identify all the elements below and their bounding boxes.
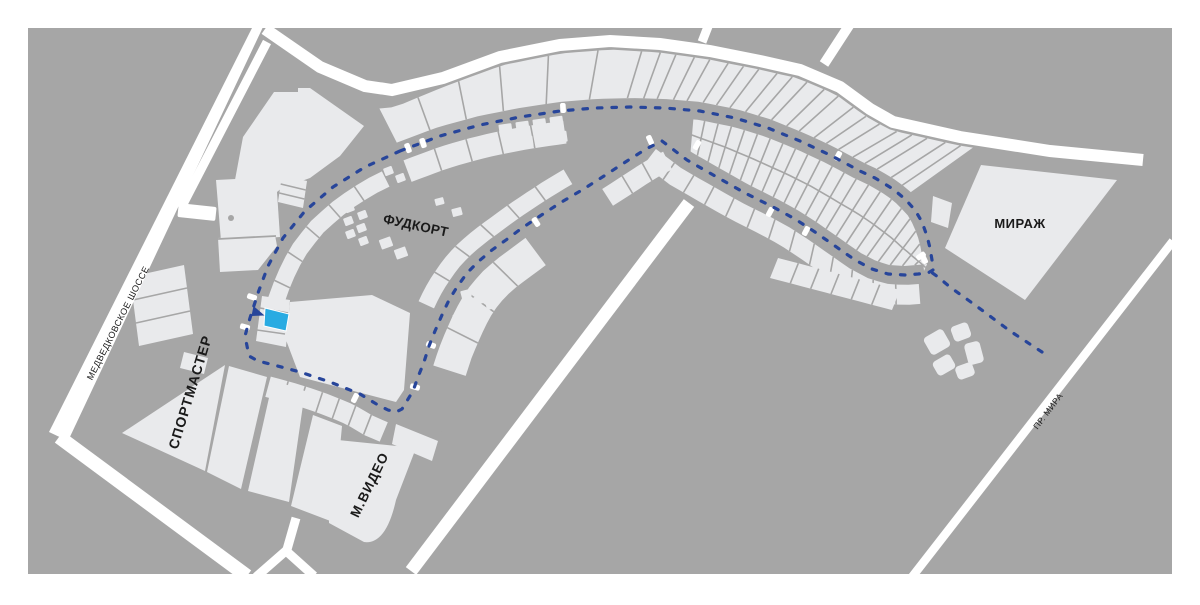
svg-text:МИРАЖ: МИРАЖ [994, 216, 1045, 231]
